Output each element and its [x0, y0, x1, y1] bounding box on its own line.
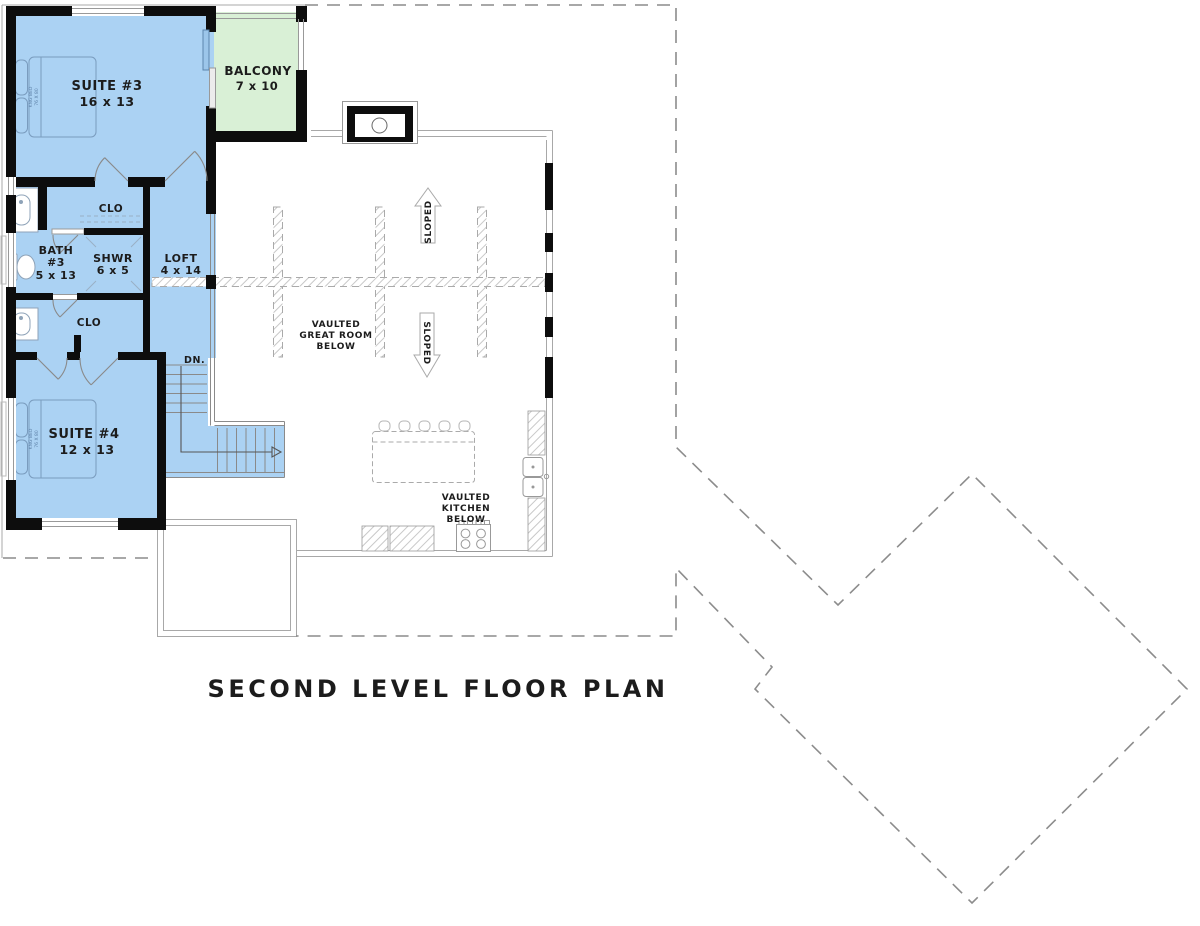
roof-below-outline [158, 520, 297, 637]
balcony-label: BALCONY [224, 64, 291, 78]
kitchen-fixtures [362, 411, 549, 552]
bath3-number: #3 [47, 256, 65, 269]
flue-icon [372, 118, 387, 133]
suite4-label: SUITE #4 [49, 427, 120, 442]
kitchen-note-2: KITCHEN [442, 504, 490, 514]
chimney [343, 102, 418, 144]
suite3-label: SUITE #3 [72, 79, 143, 94]
closet-upper-label: CLO [99, 203, 123, 215]
page-title: SECOND LEVEL FLOOR PLAN [208, 675, 669, 703]
suite4-dims: 12 x 13 [59, 442, 114, 457]
suite3-dims: 16 x 13 [79, 94, 134, 109]
great-room-note-1: VAULTED [312, 320, 361, 330]
closet-lower-label: CLO [77, 317, 101, 329]
floor-plan-canvas: SLOPED SLOPED SUITE #3 16 x 13 BALCONY 7… [0, 0, 1200, 926]
svg-text:KNG BED: KNG BED [28, 86, 34, 107]
bar-stools [379, 421, 470, 431]
bath3-dims: 5 x 13 [36, 269, 77, 282]
island-counter [373, 432, 475, 483]
great-room-note-2: GREAT ROOM [299, 331, 372, 341]
range-icon [457, 521, 491, 552]
kitchen-sink-icon [523, 458, 549, 497]
svg-text:76 X 80: 76 X 80 [34, 88, 40, 106]
shower-glass [52, 229, 84, 234]
sloped-label-upper: SLOPED [424, 200, 434, 243]
floor-plan: SLOPED SLOPED SUITE #3 16 x 13 BALCONY 7… [0, 0, 1200, 926]
great-room-note-3: BELOW [317, 342, 356, 352]
stairs-down-label: DN. [184, 355, 205, 366]
svg-text:76 X 80: 76 X 80 [34, 430, 40, 448]
shower-dims: 6 x 5 [97, 264, 130, 277]
svg-text:KNG BED: KNG BED [28, 428, 34, 449]
balcony-dims: 7 x 10 [236, 79, 278, 93]
kitchen-note-3: BELOW [447, 515, 486, 525]
loft-dims: 4 x 14 [161, 264, 202, 277]
kitchen-note-1: VAULTED [442, 493, 491, 503]
sloped-label-lower: SLOPED [421, 321, 431, 364]
stairs-area [166, 358, 284, 477]
